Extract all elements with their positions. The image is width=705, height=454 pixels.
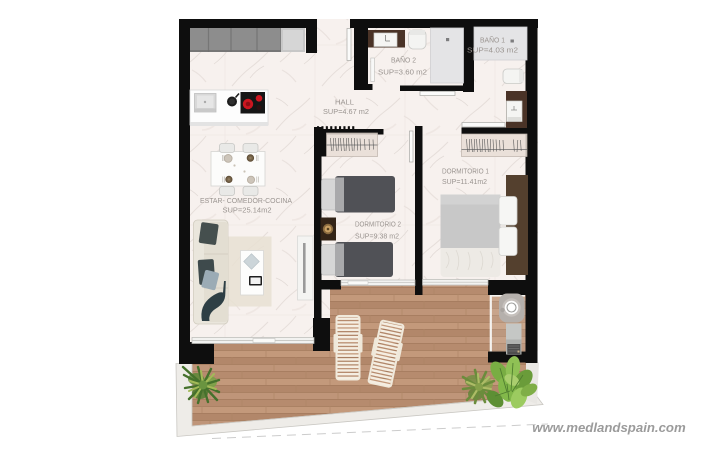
- svg-text:DORMITORIO 2: DORMITORIO 2: [355, 222, 401, 229]
- svg-text:HALL: HALL: [335, 100, 354, 107]
- svg-text:SUP=25.14m2: SUP=25.14m2: [223, 208, 272, 215]
- svg-text:SUP=4.03 m2: SUP=4.03 m2: [467, 48, 518, 55]
- svg-text:SUP=4.67 m2: SUP=4.67 m2: [323, 109, 369, 116]
- svg-text:BAÑO 1: BAÑO 1: [480, 36, 505, 45]
- svg-text:SUP=3.60 m2: SUP=3.60 m2: [378, 70, 427, 77]
- svg-text:www.medlandspain.com: www.medlandspain.com: [532, 420, 686, 435]
- svg-text:BAÑO 2: BAÑO 2: [391, 56, 416, 65]
- svg-text:DORMITORIO 1: DORMITORIO 1: [442, 169, 489, 176]
- svg-text:SUP=9.38 m2: SUP=9.38 m2: [355, 234, 399, 241]
- svg-text:SUP=11.41m2: SUP=11.41m2: [442, 179, 487, 186]
- svg-text:ESTAR- COMEDOR-COCINA: ESTAR- COMEDOR-COCINA: [200, 198, 292, 205]
